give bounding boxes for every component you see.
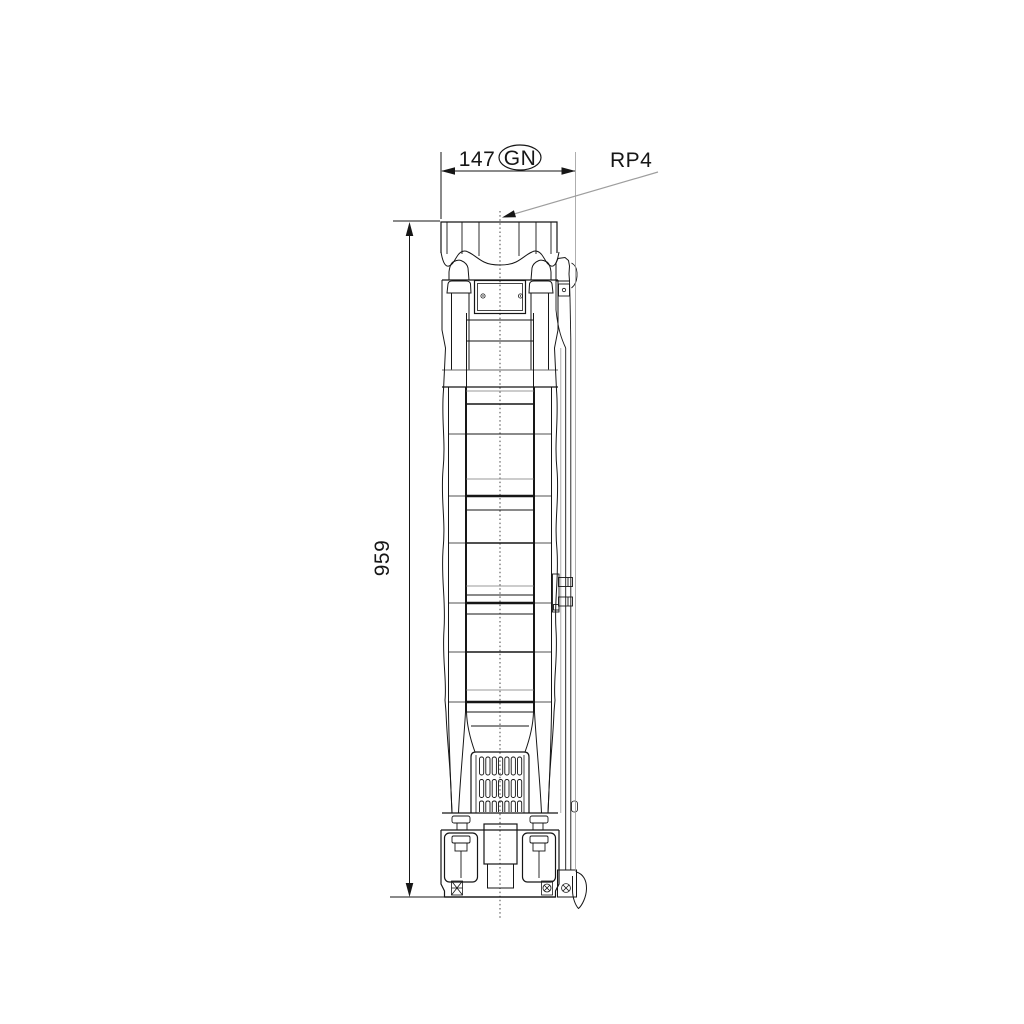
connection-label-text: RP4 <box>610 149 652 172</box>
pump-dimensional-drawing: 147 GN 959 RP4 <box>0 0 1024 1024</box>
fixing-mark-right <box>542 881 553 895</box>
dimension-height: 959 <box>371 221 444 897</box>
leader-line <box>506 172 658 216</box>
pump-outline <box>441 222 587 909</box>
strainer-slots <box>480 757 522 812</box>
arrowhead-left <box>441 167 455 175</box>
dimension-width: 147 GN <box>441 145 576 872</box>
leader-arrowhead <box>502 210 516 217</box>
fixing-mark-left <box>452 881 463 895</box>
motor-cable <box>553 258 587 909</box>
height-dimension-text: 959 <box>371 540 394 577</box>
drawing-canvas: 147 GN 959 RP4 <box>0 0 1024 1024</box>
gn-badge-text: GN <box>504 147 537 170</box>
cable-foot <box>558 870 587 909</box>
width-dimension-text: 147 <box>459 148 496 171</box>
arrowhead-right <box>562 167 576 175</box>
arrowhead-up <box>406 222 414 236</box>
suction-strainer <box>467 712 534 813</box>
cable-plug <box>556 258 570 282</box>
arrowhead-down <box>406 883 414 897</box>
